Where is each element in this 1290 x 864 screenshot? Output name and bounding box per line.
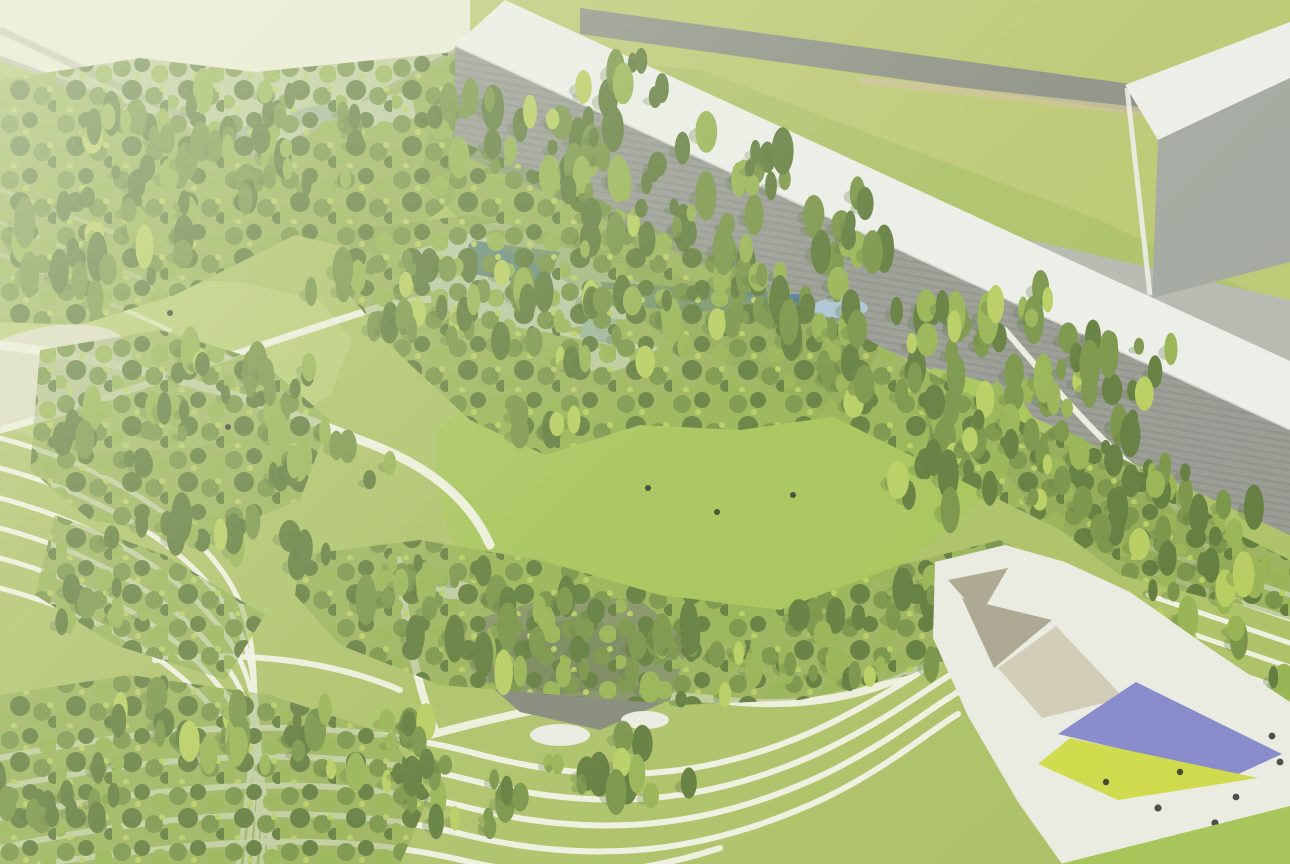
tree-canopy [741,311,750,324]
tree-canopy [963,460,974,478]
tree-canopy [519,284,536,320]
aerial-park-photo [0,0,1290,864]
tree [1143,579,1158,601]
tree-canopy [561,176,577,205]
tree-canopy [875,656,885,672]
tree-canopy [579,658,589,681]
tree-canopy [1158,541,1176,576]
tree [50,608,69,635]
tree-canopy [440,83,458,121]
tree-canopy [111,165,120,179]
tree-canopy [491,322,510,361]
tree-canopy [750,638,760,654]
tree-canopy [245,505,260,540]
tree-canopy [474,632,494,678]
tree-canopy [635,346,654,378]
tree-canopy [214,519,228,551]
tree-canopy [827,317,837,341]
tree-canopy [1102,373,1123,405]
tree-canopy [1233,551,1255,597]
tree-canopy [269,462,278,485]
tree-canopy [535,271,554,312]
tree-canopy [422,596,437,620]
tree-canopy [677,334,691,358]
tree-canopy [662,290,672,312]
tree-canopy [101,103,116,130]
tree-canopy [467,284,480,315]
tree-canopy [987,285,1004,323]
tree-canopy [1034,354,1054,403]
tree-canopy [387,553,397,572]
tree-canopy [554,310,565,333]
tree-canopy [284,83,295,109]
tree-canopy [14,197,35,248]
tree-canopy [283,158,293,180]
tree-canopy [687,204,696,221]
tree-canopy [772,127,794,174]
tree-canopy [587,599,605,624]
tree-canopy [497,602,518,650]
tree-canopy [55,608,68,635]
tree-canopy [526,327,543,356]
tree-canopy [137,605,149,621]
tree-canopy [222,135,235,164]
tree-canopy [836,374,845,392]
tree-canopy [887,461,909,499]
tree-canopy [45,805,59,828]
tree-canopy [155,720,166,747]
tree-canopy [623,286,642,315]
tree-canopy [348,104,360,130]
tree-canopy [504,136,517,163]
tree-canopy [20,252,39,298]
tree-canopy [384,451,397,475]
tree-canopy [87,108,102,145]
tree-canopy [160,124,175,154]
tree-canopy [681,767,697,798]
tree-canopy [862,230,883,274]
tree-canopy [450,806,460,831]
tree-canopy [1054,466,1071,495]
tree-canopy [402,710,416,736]
tree-canopy [484,86,495,112]
tree-canopy [1129,528,1150,560]
tree-canopy [1135,376,1154,410]
tree-canopy [135,509,148,538]
tree-canopy [924,384,945,419]
tree-canopy [675,691,686,708]
tree-canopy [120,110,131,133]
tree-canopy [962,427,978,452]
tree-canopy [363,470,376,489]
tree-canopy [556,587,573,615]
tree-canopy [805,216,818,237]
tree-canopy [490,769,499,789]
tree-canopy [57,191,72,222]
tree-canopy [849,661,861,689]
tree-canopy [245,374,256,398]
tree-canopy [1164,333,1177,366]
tree-canopy [567,405,580,434]
tree-canopy [1179,478,1193,509]
tree-canopy [695,171,716,221]
tree-canopy [347,130,364,156]
tree-canopy [177,425,187,442]
tree-canopy [208,130,222,163]
tree-canopy [699,285,709,301]
tree-canopy [643,783,659,809]
tree-canopy [221,385,230,404]
tree-canopy [1081,369,1097,408]
tree-canopy [1098,330,1118,378]
tree [326,247,353,291]
tree-canopy [186,94,197,120]
tree-canopy [104,525,119,549]
tree-canopy [447,617,461,645]
tree-canopy [756,263,767,287]
tree-canopy [50,249,69,294]
tree-canopy [628,631,647,660]
tree-canopy [1167,582,1179,602]
tree-canopy [1244,485,1264,530]
tree-canopy [695,111,717,153]
tree-canopy [124,450,135,467]
tree-canopy [923,646,939,683]
tree-canopy [402,756,422,797]
tree-canopy [413,554,422,571]
tree-canopy [1148,579,1157,601]
tree-canopy [864,666,876,687]
tree [422,804,444,840]
tree-canopy [263,164,276,189]
tree-canopy [1110,486,1129,530]
tree-canopy [290,379,301,399]
tree-canopy [625,657,638,683]
tree-canopy [439,256,457,282]
tree-canopy [1069,437,1089,470]
tree-canopy [147,677,168,713]
tree-canopy [403,250,412,270]
tree-canopy [687,285,698,301]
tree-canopy [611,325,621,347]
tree-canopy [613,63,634,104]
tree-canopy [274,103,287,129]
tree-canopy [486,589,495,607]
tree-canopy [179,190,190,215]
tree-canopy [366,259,376,275]
tree-canopy [88,802,106,833]
tree-canopy [1090,513,1112,543]
tree-canopy [947,310,961,342]
tree-canopy [494,650,513,696]
park-scene [0,0,1290,864]
tree-canopy [579,345,591,373]
tree-canopy [160,511,173,536]
tree-canopy [529,627,545,657]
tree-canopy [319,419,331,446]
tree-canopy [675,132,690,165]
tree-canopy [200,735,217,774]
tree-canopy [1128,409,1138,427]
tree-canopy [379,709,395,732]
tree-canopy [549,412,564,436]
tree-canopy [99,254,117,285]
tree-canopy [1180,463,1190,481]
tree-canopy [1134,338,1144,355]
tree-canopy [635,48,647,74]
tree-canopy [709,641,725,668]
tree-canopy [731,162,746,197]
tree-canopy [80,187,94,208]
tree-canopy [260,754,271,775]
tree-canopy [321,543,331,566]
tree-canopy [257,357,274,386]
tree-canopy [514,656,527,687]
tree-canopy [1146,470,1165,498]
tree-canopy [136,224,154,268]
tree-canopy [490,159,500,174]
tree-canopy [53,422,73,456]
tree-canopy [75,419,94,459]
tree-canopy [750,140,761,164]
tree-canopy [329,431,343,461]
tree-canopy [229,689,247,728]
tree-canopy [928,452,940,476]
tree [444,806,460,831]
tree-canopy [593,286,612,314]
tree-canopy [814,621,832,648]
tree-canopy [635,199,648,218]
tree-canopy [648,157,661,182]
tree-canopy [406,615,425,655]
tree-canopy [66,238,79,256]
tree-canopy [1023,418,1039,451]
tree-canopy [179,400,189,423]
tree-canopy [318,693,331,724]
tree-canopy [460,101,471,119]
tree-canopy [575,70,592,103]
tree-canopy [556,661,571,688]
tree-canopy [1227,615,1245,641]
tree-canopy [229,727,248,762]
tree-canopy [723,307,740,338]
tree-canopy [682,219,697,246]
tree [373,709,395,732]
tree-canopy [91,752,104,784]
tree-canopy [305,277,317,306]
tree-canopy [450,574,459,588]
tree-canopy [112,577,122,597]
tree-canopy [552,754,564,775]
tree-canopy [1056,359,1066,380]
tree-canopy [719,682,731,708]
tree-canopy [854,365,874,404]
tree-canopy [296,529,312,565]
tree-canopy [146,268,156,285]
tree-canopy [1104,444,1123,476]
tree-canopy [1216,490,1231,520]
tree-canopy [63,574,81,604]
tree-canopy [140,155,156,181]
tree-canopy [596,143,610,172]
tree-canopy [784,652,796,677]
tree-canopy [1226,518,1243,547]
tree-canopy [511,418,530,449]
tree-canopy [713,224,734,275]
tree-canopy [436,295,447,321]
tree-canopy [639,221,656,256]
tree-canopy [494,260,510,286]
tree-canopy [1003,429,1018,459]
tree-canopy [449,136,470,179]
tree-canopy [302,353,317,382]
tree-canopy [851,604,865,630]
tree-canopy [808,665,818,682]
tree-canopy [355,574,376,625]
tree-canopy [257,80,272,103]
tree-canopy [326,760,336,779]
tree-canopy [394,569,409,596]
tree-canopy [982,471,997,506]
tree-canopy [857,187,874,220]
tree-canopy [941,487,960,534]
tree-canopy [1269,666,1279,689]
tree-canopy [779,299,798,345]
tree-canopy [333,247,354,291]
tree-canopy [606,769,627,815]
tree-canopy [280,139,292,158]
tree-canopy [406,316,417,343]
tree-canopy [800,294,815,318]
tree-canopy [173,240,193,269]
tree-canopy [581,198,602,230]
tree-canopy [160,409,169,423]
tree-canopy [589,128,599,148]
tree-canopy [385,732,397,752]
tree-canopy [640,671,661,703]
tree-canopy [195,352,210,376]
tree-canopy [141,420,154,439]
tree-canopy [179,721,200,762]
tree-canopy [629,754,646,793]
tree-canopy [649,86,662,108]
tree-canopy [149,126,160,150]
tree-canopy [547,140,557,156]
tree-canopy [936,290,949,323]
tree-canopy [745,174,760,195]
tree-canopy [606,212,625,256]
tree-canopy [438,755,452,775]
tree-canopy [1028,488,1038,505]
tree-canopy [847,310,867,348]
tree-canopy [484,816,497,839]
tree [357,470,376,489]
tree-canopy [708,308,725,340]
tree-canopy [1042,287,1053,312]
tree-canopy [890,297,903,326]
tree-canopy [1043,454,1052,474]
tree-canopy [845,211,855,235]
tree-canopy [134,451,153,478]
tree-canopy [501,776,513,806]
tree-canopy [739,234,753,263]
tree-canopy [475,555,491,586]
tree-canopy [1073,486,1093,518]
tree-canopy [788,599,810,631]
tree-canopy [1197,552,1208,574]
tree-canopy [546,109,559,129]
tree-canopy [446,325,458,347]
tree-canopy [113,753,125,770]
tree-canopy [302,172,312,196]
tree-canopy [66,798,78,823]
tree-canopy [895,379,908,408]
tree-canopy [171,492,192,543]
tree-canopy [268,410,288,456]
tree-canopy [745,160,755,177]
tree-canopy [580,240,590,258]
tree-canopy [26,799,41,828]
tree-canopy [399,272,412,298]
tree-canopy [826,644,846,680]
tree-canopy [340,171,352,189]
tree-canopy [107,607,121,627]
tree-canopy [111,704,127,738]
tree-canopy [973,409,985,430]
tree-canopy [512,783,529,812]
tree-canopy [1025,309,1038,328]
tree-canopy [121,198,137,222]
tree-canopy [1055,420,1070,442]
tree-canopy [613,721,633,752]
tree-canopy [745,194,764,235]
tree-canopy [87,279,103,317]
tree-canopy [428,804,444,840]
tree-canopy [291,740,305,762]
tree-canopy [1061,399,1073,418]
tree-canopy [346,753,366,792]
tree-canopy [287,445,302,479]
tree [378,451,397,475]
tree-canopy [917,323,938,357]
tree-canopy [523,95,537,129]
tree-canopy [734,641,744,665]
tree-canopy [908,362,923,394]
tree-canopy [108,783,120,808]
tree-canopy [608,155,629,203]
tree-canopy [907,333,917,354]
tree-canopy [681,616,701,654]
tree [484,769,499,789]
tree-canopy [893,568,914,612]
